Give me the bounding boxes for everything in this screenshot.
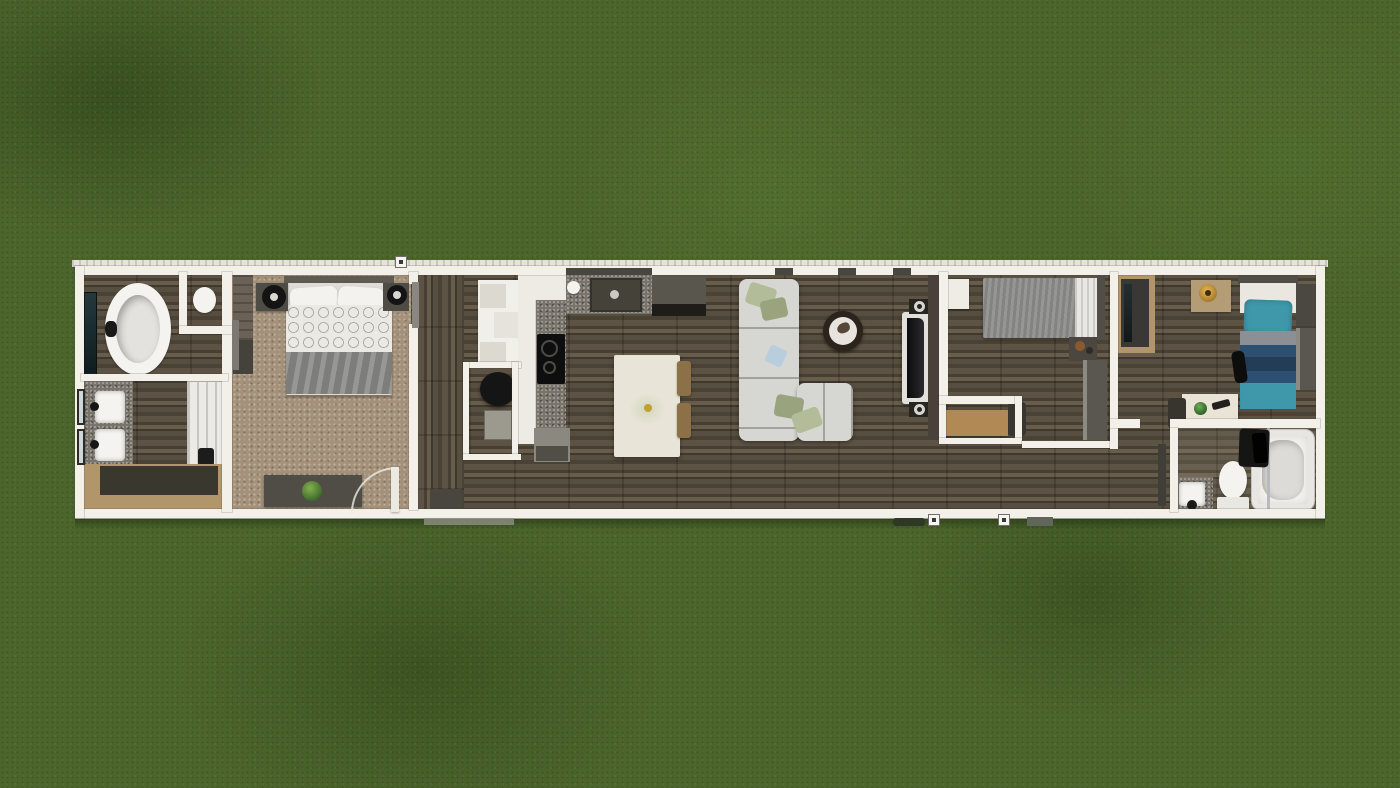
kitchen-burner-a <box>541 340 558 357</box>
wall-utility-bottom <box>463 454 521 460</box>
door-bath2 <box>1158 444 1166 506</box>
door-masterbath <box>232 320 239 370</box>
kitchen-paper-roll <box>567 281 580 294</box>
mbr-lamp-left-dot <box>270 293 278 301</box>
br3-bed-pillow <box>1243 299 1292 335</box>
kitchen-counter-corner <box>518 274 568 300</box>
br2-nightstand-bowl <box>1075 341 1085 351</box>
wall-bath2-left <box>1170 428 1178 512</box>
mbr-blanket <box>286 352 392 394</box>
pantry-shelf-c <box>480 342 506 364</box>
speaker-top-ring <box>914 301 925 312</box>
wall-bedroom3-hall <box>1110 419 1140 428</box>
door-masterbedroom <box>412 282 419 328</box>
mbr-dresser-plant <box>302 481 322 501</box>
window-living-a <box>775 268 793 275</box>
mbath-faucet-b <box>90 440 99 449</box>
kitchen-burner-b <box>543 361 556 374</box>
mbr-lamp-right-dot <box>393 291 401 299</box>
kitchen-lower-cabinet-front <box>536 446 568 461</box>
window-mbath-b <box>77 429 85 465</box>
br2-wardrobe <box>1083 360 1107 440</box>
tv-screen <box>907 318 924 398</box>
shrub-exterior <box>893 518 925 526</box>
mbath-tub-faucet <box>105 321 117 337</box>
kitchen-oven-front <box>652 304 706 316</box>
step-entry <box>424 518 514 525</box>
br3-wardrobe-lower <box>1296 328 1318 390</box>
pantry-shelf-a <box>480 284 506 308</box>
utility-washer <box>484 410 512 440</box>
br3-bed-duvet <box>1240 345 1296 385</box>
bath2-toilet-bowl <box>1219 461 1247 499</box>
window-kitchen <box>566 268 652 275</box>
br3-desk <box>1182 394 1238 422</box>
pantry-shelf-b <box>494 312 518 338</box>
br2-bed-duvet <box>983 278 1075 338</box>
mbath-sink-a <box>95 391 125 423</box>
window-mbath-a <box>77 389 85 425</box>
wall-utility-left <box>463 362 469 460</box>
br2-bed-pillow <box>1075 278 1097 338</box>
kitchen-counter-dark <box>652 274 706 308</box>
marker-bottom-a-dot <box>932 518 936 522</box>
step-exterior <box>1027 517 1053 526</box>
mbath-sink-b <box>95 429 125 461</box>
wall-mbr-hall-lower <box>409 324 418 510</box>
wall-desknook-bottom <box>939 438 1022 444</box>
wall-living-bedroom2 <box>939 272 948 404</box>
br3-closet-mirror <box>1124 284 1132 342</box>
br2-bed-headboard <box>1097 276 1105 340</box>
window-living-c <box>893 268 911 275</box>
wall-outer-right <box>1316 266 1325 519</box>
mbath-tub-basin <box>116 295 160 363</box>
kitchen-faucet <box>610 290 619 299</box>
speaker-bottom-ring <box>914 404 925 415</box>
utility-round-table <box>480 372 516 406</box>
br3-wardrobe-upper <box>1296 284 1318 326</box>
mbath-toilet <box>193 287 216 313</box>
br2-nightstand-cup <box>1086 347 1093 354</box>
br2-desk <box>944 410 1008 436</box>
wall-watercloset-shelf <box>179 326 232 334</box>
br3-desk-plant <box>1194 402 1207 415</box>
marker-top-dot <box>399 260 403 264</box>
closet-wardrobe-interior <box>100 466 218 495</box>
wall-bedroom2-bottom-b <box>1022 441 1118 448</box>
mbath-faucet-a <box>90 402 99 411</box>
wall-outer-top <box>75 266 1325 275</box>
wall-watercloset <box>179 272 187 332</box>
wall-mbath-bedroom <box>222 272 232 512</box>
dining-chair-b <box>677 403 691 438</box>
marker-bottom-b-dot <box>1002 518 1006 522</box>
dining-chair-a <box>677 361 691 396</box>
dining-centerpiece-flower <box>644 404 652 412</box>
house-ground-shadow <box>75 518 1325 530</box>
entry-door-mat <box>430 489 462 511</box>
br3-lamp-dot <box>1205 290 1211 296</box>
media-accent-wall <box>928 272 939 440</box>
window-living-b <box>838 268 856 275</box>
br3-bed-foot <box>1240 383 1296 409</box>
wall-desknook-right <box>1015 396 1022 444</box>
mbath-wall-mirror <box>84 292 97 378</box>
mbr-duvet-circle-pattern <box>286 305 392 359</box>
wall-utility-right <box>512 362 518 460</box>
wall-mbath-mid <box>81 374 228 381</box>
wall-bath2-top <box>1170 419 1320 428</box>
bath2-towel-b <box>1252 432 1269 463</box>
wall-bedroom2-bottom-a <box>939 396 1022 404</box>
floor-entry-hall <box>418 272 464 510</box>
floorplan-layer <box>0 0 1400 788</box>
aerial-floorplan-view <box>0 0 1400 788</box>
